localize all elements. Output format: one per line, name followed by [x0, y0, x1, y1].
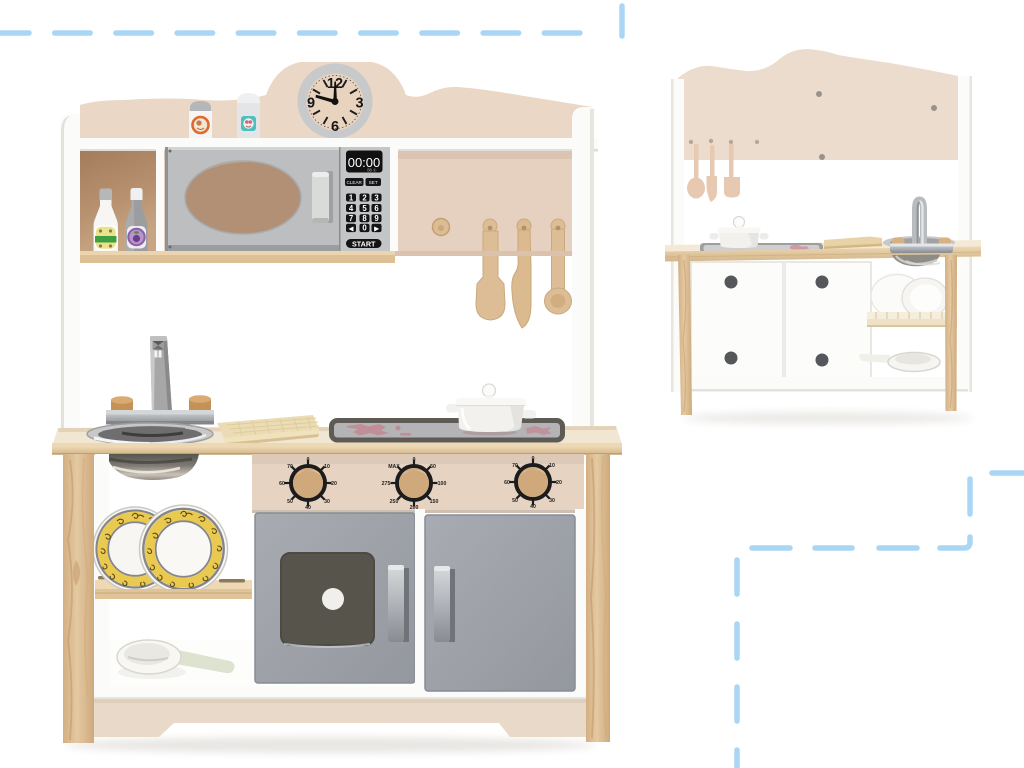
svg-text:6: 6 [331, 119, 339, 135]
svg-text:2: 2 [362, 193, 367, 202]
svg-text:MAX: MAX [388, 464, 400, 470]
svg-text:70: 70 [287, 464, 293, 470]
svg-text:10: 10 [324, 464, 330, 470]
svg-text:60: 60 [279, 481, 285, 487]
svg-text:SET: SET [369, 180, 378, 185]
svg-text:100: 100 [438, 481, 447, 487]
svg-text:150: 150 [430, 499, 439, 505]
svg-text:30: 30 [549, 498, 555, 504]
svg-text:3: 3 [355, 96, 363, 112]
svg-text:50: 50 [287, 499, 293, 505]
svg-text:40: 40 [530, 504, 536, 510]
svg-text:0: 0 [413, 457, 416, 463]
svg-text:20: 20 [556, 480, 562, 486]
svg-text:50: 50 [512, 498, 518, 504]
svg-text:275: 275 [382, 481, 391, 487]
svg-text:CLEAR: CLEAR [347, 180, 363, 185]
svg-text:1: 1 [349, 193, 354, 202]
svg-text:20: 20 [331, 481, 337, 487]
svg-text:9: 9 [374, 214, 379, 223]
svg-text:9: 9 [307, 96, 315, 112]
svg-text:0: 0 [362, 224, 367, 233]
svg-text:8: 8 [362, 214, 367, 223]
svg-text:▶: ▶ [373, 226, 379, 233]
svg-text:◀: ◀ [348, 226, 354, 233]
svg-text:60: 60 [504, 480, 510, 486]
svg-text:START: START [352, 239, 376, 248]
svg-text:7: 7 [349, 214, 353, 223]
svg-text:5: 5 [362, 204, 367, 213]
svg-text:88 ①: 88 ① [367, 168, 377, 173]
svg-text:50: 50 [430, 464, 436, 470]
svg-text:70: 70 [512, 463, 518, 469]
svg-text:0: 0 [307, 457, 310, 463]
svg-text:10: 10 [549, 463, 555, 469]
svg-text:0: 0 [532, 456, 535, 462]
svg-text:250: 250 [390, 499, 399, 505]
svg-text:3: 3 [374, 193, 379, 202]
svg-text:30: 30 [324, 499, 330, 505]
svg-text:4: 4 [349, 204, 354, 213]
svg-text:6: 6 [374, 204, 379, 213]
svg-text:40: 40 [305, 505, 311, 511]
